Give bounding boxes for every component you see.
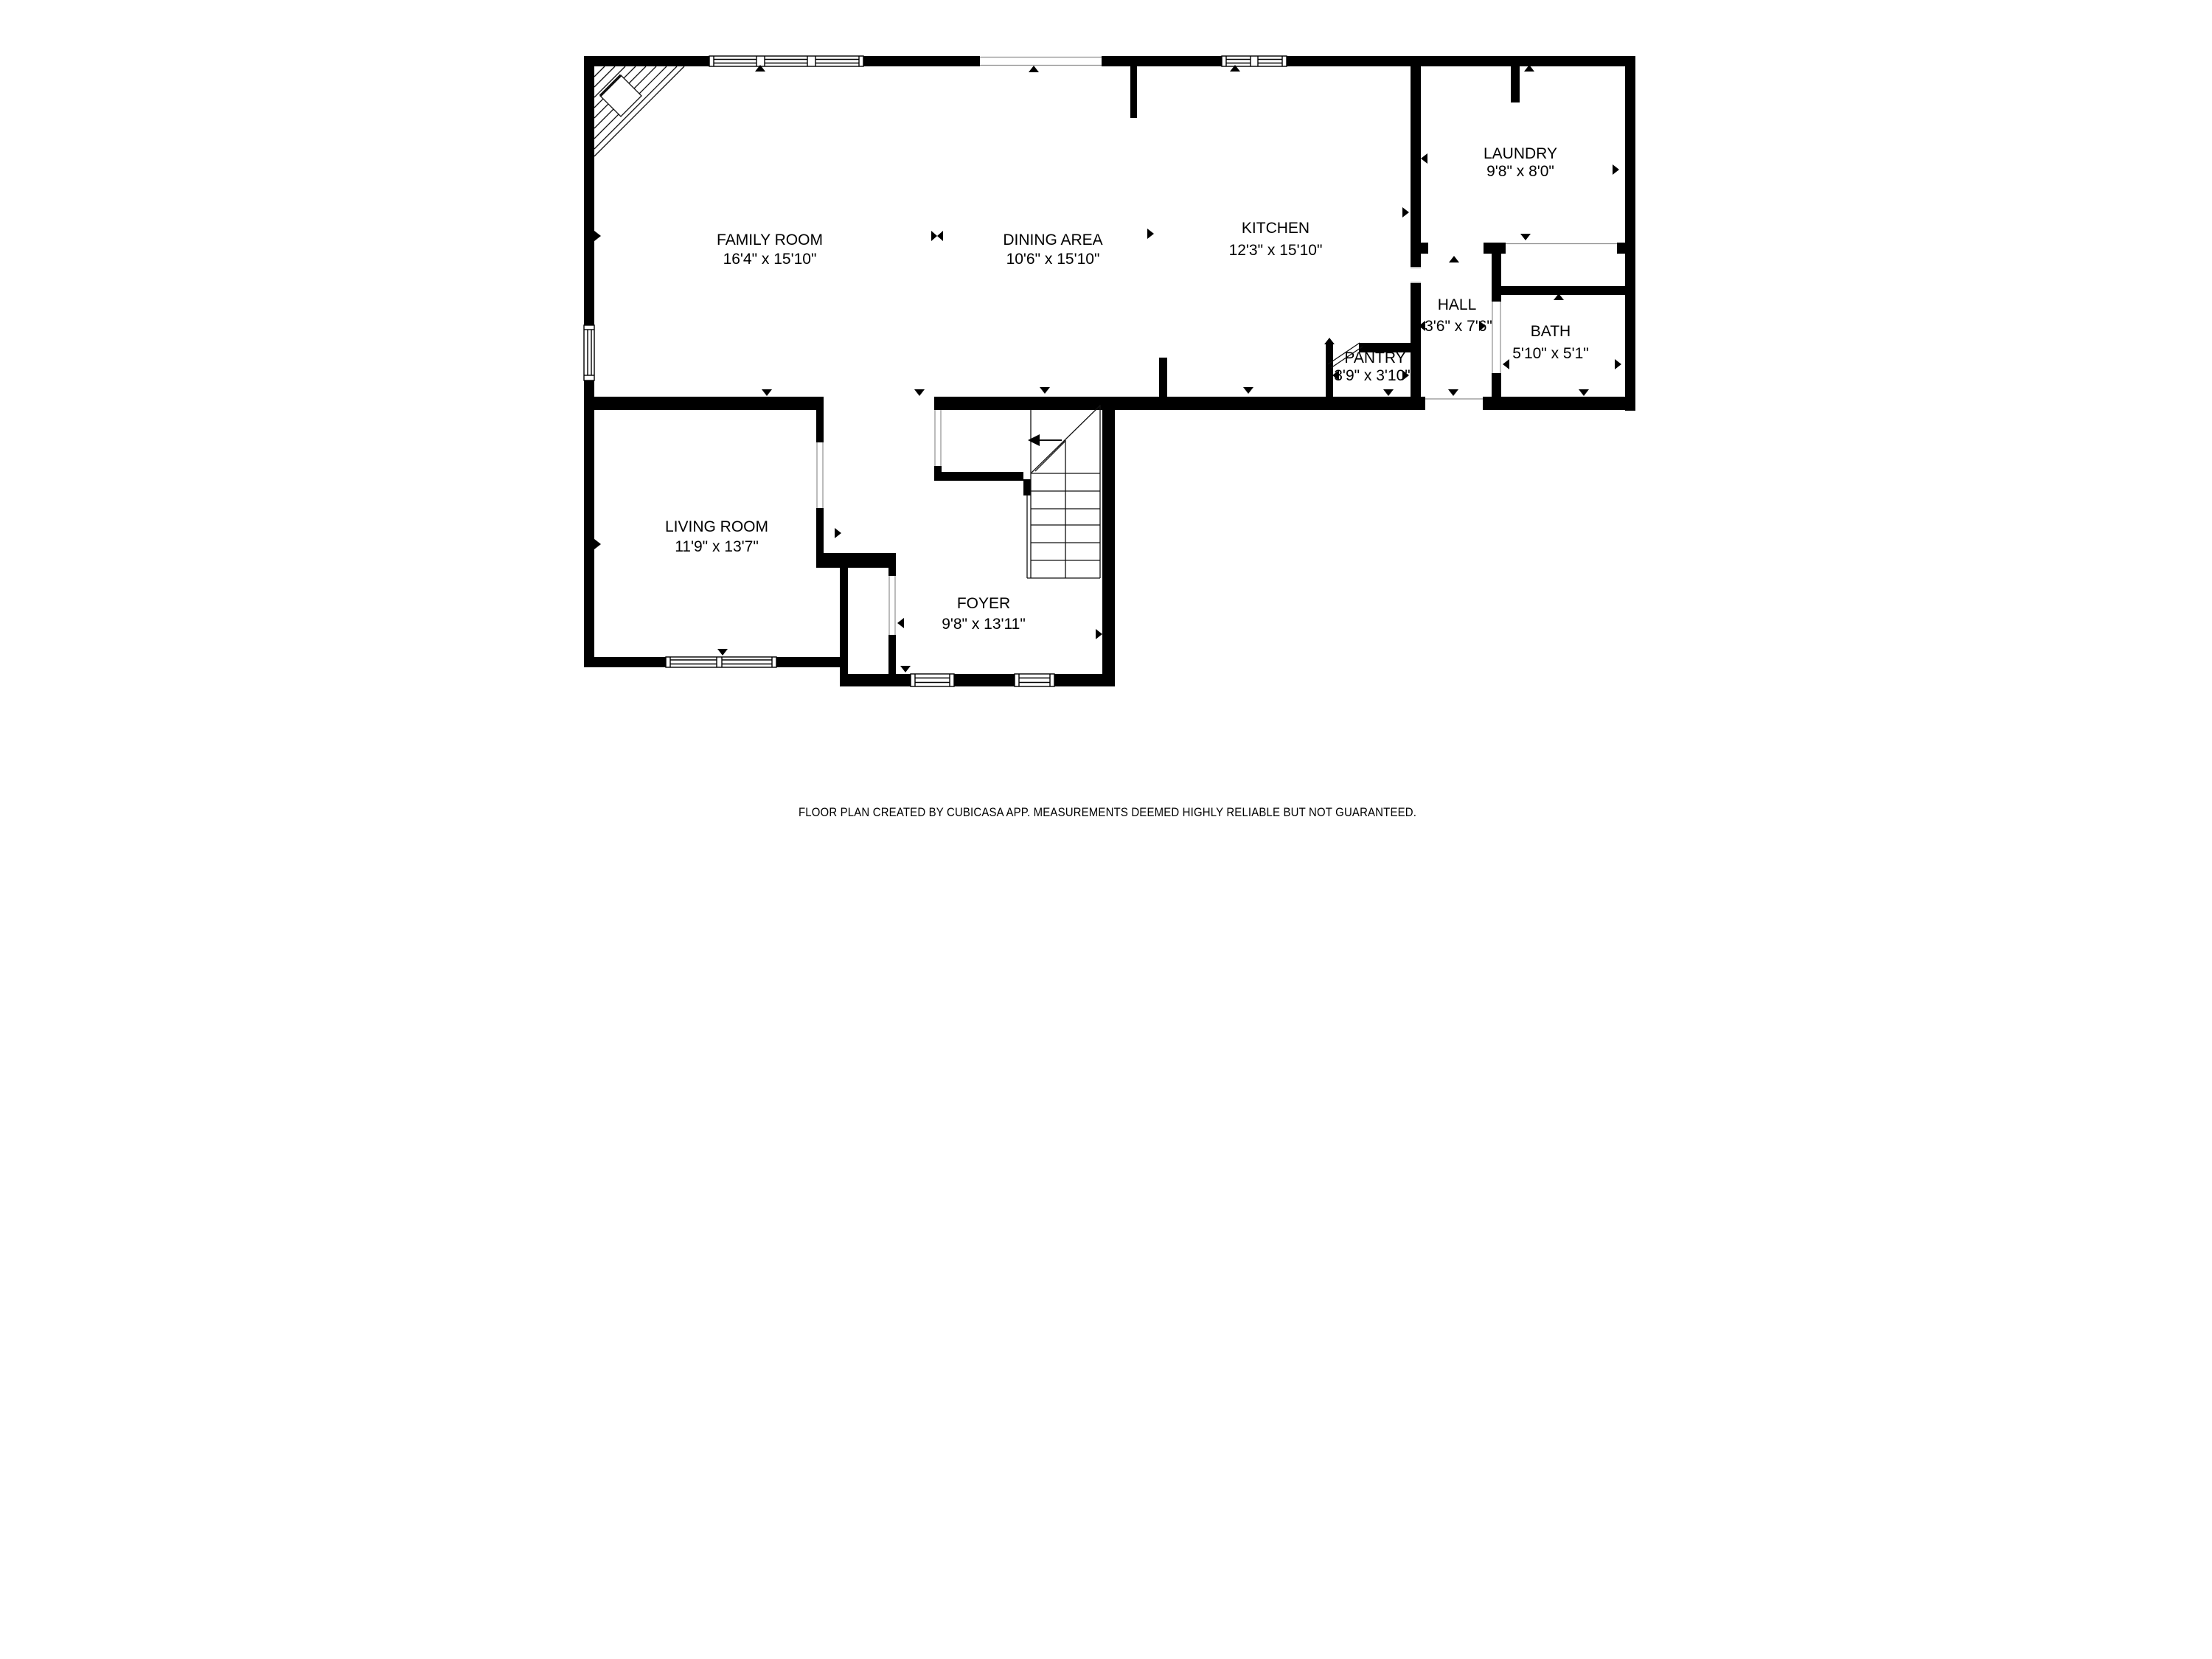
room-label-dining-area: DINING AREA [1003,232,1102,248]
room-label-pantry: PANTRY [1344,349,1405,366]
room-dims-foyer: 9'8" x 13'11" [942,616,1026,633]
floor-plan-canvas: FAMILY ROOM 16'4" x 15'10" DINING AREA 1… [553,0,1659,829]
room-dims-dining-area: 10'6" x 15'10" [1006,251,1100,268]
footer-disclaimer: FLOOR PLAN CREATED BY CUBICASA APP. MEAS… [799,806,1416,819]
wall-pantry-left [1326,344,1333,397]
room-dims-family-room: 16'4" x 15'10" [723,251,817,268]
wall-left-lower [584,380,594,667]
wall-living-top [594,397,824,410]
wall-closet-top [816,553,896,568]
wall-living-bottom-2 [776,657,848,667]
wall-landing-left [934,466,942,481]
wall-top-3 [1102,56,1222,66]
wall-kitchen-laundry [1411,66,1421,267]
room-label-laundry: LAUNDRY [1484,145,1557,162]
room-label-bath: BATH [1531,323,1571,340]
front-door-window-1 [911,674,954,686]
window-living-bottom [666,657,776,667]
wall-laundry-bottom-3 [1617,243,1625,254]
wall-living-bottom-1 [584,657,666,667]
wall-top-1 [584,56,709,66]
wall-right [1625,66,1635,411]
wall-foyer-front-1 [840,674,911,686]
wall-foyer-front-2 [954,674,1015,686]
wall-top-2 [863,56,980,66]
room-dims-hall: 3'6" x 7'6" [1425,318,1492,335]
room-label-foyer: FOYER [957,595,1010,612]
wall-stair-stub [1023,479,1031,495]
wall-laundry-bottom-2 [1484,243,1506,254]
wall-laundry-entry-stub [1511,66,1520,102]
room-label-living-room: LIVING ROOM [665,518,768,535]
room-label-hall: HALL [1438,296,1477,313]
room-label-kitchen: KITCHEN [1242,220,1310,237]
wall-closet-right-upper [888,568,896,576]
room-dims-pantry: 3'9" x 3'10" [1334,367,1411,384]
wall-laundry-bottom-1 [1421,243,1428,254]
room-dims-kitchen: 12'3" x 15'10" [1229,242,1323,259]
wall-top-4 [1287,56,1635,66]
wall-dining-kitchen-bottom-stub [1159,358,1167,397]
wall-foyer-right [1102,397,1115,686]
wall-mid-bottom-1 [934,397,1425,410]
wall-left-upper [584,66,594,325]
wall-landing-bottom [942,472,1023,481]
wall-closet-left [840,568,848,674]
room-dims-laundry: 9'8" x 8'0" [1486,163,1554,180]
wall-hall-bath-lower [1492,373,1501,397]
window-family-top [709,56,863,66]
window-kitchen-top [1222,56,1287,66]
room-dims-bath: 5'10" x 5'1" [1512,345,1589,362]
wall-closet-right-lower [888,635,896,674]
floor-plan-page: FAMILY ROOM 16'4" x 15'10" DINING AREA 1… [553,0,1659,829]
room-label-family-room: FAMILY ROOM [717,232,823,248]
wall-mid-bottom-2 [1483,397,1635,410]
front-door-window-2 [1015,674,1054,686]
window-left-wall [584,325,594,380]
wall-bath-top [1492,286,1635,295]
wall-living-right-upper [816,410,824,442]
wall-kitchen-hall [1411,283,1421,397]
room-dims-living-room: 11'9" x 13'7" [675,538,759,555]
wall-dining-kitchen-top-stub [1130,66,1137,118]
